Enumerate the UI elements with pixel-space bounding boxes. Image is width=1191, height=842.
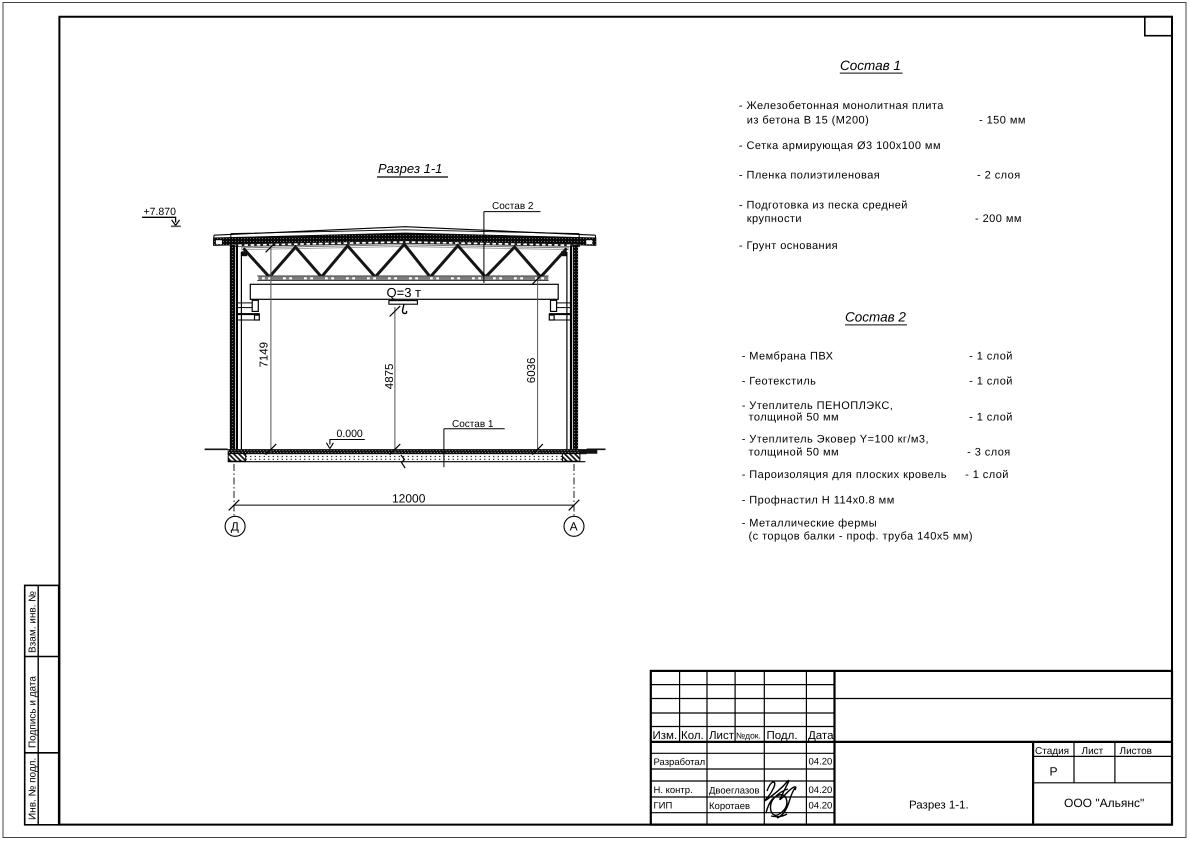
- svg-text:Д: Д: [231, 520, 239, 534]
- svg-text:- 2 слоя: - 2 слоя: [977, 170, 1021, 182]
- svg-text:- Пароизоляция для плоских кро: - Пароизоляция для плоских кровель: [742, 469, 947, 481]
- svg-text:крупности: крупности: [747, 213, 802, 225]
- svg-text:- Сетка армирующая Ø3 100х100: - Сетка армирующая Ø3 100х100 мм: [739, 140, 941, 152]
- svg-text:- Геотекстиль: - Геотекстиль: [742, 375, 817, 387]
- svg-text:Коротаев: Коротаев: [709, 801, 750, 812]
- svg-text:0.000: 0.000: [337, 428, 363, 440]
- svg-text:Листов: Листов: [1120, 746, 1153, 757]
- svg-text:Состав 2: Состав 2: [492, 201, 534, 212]
- svg-text:- Грунт основания: - Грунт основания: [739, 240, 838, 252]
- svg-text:Изм.: Изм.: [653, 730, 678, 742]
- svg-text:толщиной 50 мм: толщиной 50 мм: [749, 447, 840, 459]
- svg-text:Подл.: Подл.: [767, 730, 798, 742]
- svg-text:Лист: Лист: [1082, 746, 1104, 757]
- svg-text:Стадия: Стадия: [1035, 746, 1069, 757]
- svg-text:Двоеглазов: Двоеглазов: [709, 786, 760, 797]
- svg-text:- Пленка полиэтиленовая: - Пленка полиэтиленовая: [739, 170, 880, 182]
- svg-text:04.20: 04.20: [809, 801, 833, 812]
- svg-text:(с торцов балки - проф. труба: (с торцов балки - проф. труба 140х5 мм): [749, 530, 973, 542]
- svg-text:толщиной 50 мм: толщиной 50 мм: [749, 412, 840, 424]
- svg-text:- Металлические фермы: - Металлические фермы: [742, 518, 877, 530]
- svg-text:- Железобетонная монолитная п: - Железобетонная монолитная плита: [739, 100, 944, 112]
- svg-text:- Подготовка из песка средней: - Подготовка из песка средней: [739, 199, 908, 211]
- svg-text:- 200 мм: - 200 мм: [975, 213, 1022, 225]
- svg-text:Н. контр.: Н. контр.: [654, 785, 693, 796]
- svg-text:Лист: Лист: [709, 730, 735, 742]
- svg-text:А: А: [570, 520, 578, 534]
- svg-text:Инв. № подл.: Инв. № подл.: [28, 758, 39, 820]
- svg-text:Дата: Дата: [808, 730, 834, 742]
- svg-text:ГИП: ГИП: [654, 801, 673, 812]
- svg-text:7149: 7149: [259, 342, 271, 368]
- svg-text:Состав 1: Состав 1: [840, 58, 901, 73]
- svg-text:Кол.: Кол.: [681, 730, 704, 742]
- svg-text:04.20: 04.20: [809, 785, 833, 796]
- svg-text:- Мембрана ПВХ: - Мембрана ПВХ: [742, 350, 834, 362]
- svg-text:4875: 4875: [384, 364, 396, 390]
- svg-text:ООО "Альянс": ООО "Альянс": [1064, 796, 1144, 810]
- svg-text:Взам. инв. №: Взам. инв. №: [28, 591, 39, 653]
- svg-text:- Профнастил Н 114х0.8 мм: - Профнастил Н 114х0.8 мм: [742, 495, 895, 507]
- svg-text:- Утеплитель Эковер Y=100 кг/м: - Утеплитель Эковер Y=100 кг/м3,: [742, 433, 929, 445]
- svg-text:- Утеплитель ПЕНОПЛЭКС,: - Утеплитель ПЕНОПЛЭКС,: [742, 400, 894, 412]
- svg-text:Q=3 т: Q=3 т: [387, 285, 422, 300]
- svg-text:Разработал: Разработал: [654, 757, 706, 768]
- svg-text:- 3 слоя: - 3 слоя: [967, 447, 1011, 459]
- svg-text:12000: 12000: [392, 492, 426, 506]
- svg-text:- 1 слой: - 1 слой: [969, 375, 1013, 387]
- svg-text:Разрез 1-1: Разрез 1-1: [378, 161, 442, 176]
- svg-text:+7.870: +7.870: [144, 206, 177, 218]
- svg-text:Р: Р: [1050, 765, 1058, 779]
- svg-text:04.20: 04.20: [809, 757, 833, 768]
- svg-text:Подпись и дата: Подпись и дата: [28, 676, 39, 748]
- svg-text:из бетона В 15 (М200): из бетона В 15 (М200): [747, 114, 869, 126]
- svg-text:Разрез 1-1.: Разрез 1-1.: [909, 800, 969, 812]
- svg-text:- 150 мм: - 150 мм: [979, 114, 1026, 126]
- svg-text:- 1 слой: - 1 слой: [965, 469, 1009, 481]
- svg-text:- 1 слой: - 1 слой: [969, 412, 1013, 424]
- svg-text:6036: 6036: [526, 358, 538, 384]
- svg-text:- 1 слой: - 1 слой: [969, 350, 1013, 362]
- svg-text:№док.: №док.: [736, 731, 761, 741]
- svg-text:Состав 2: Состав 2: [845, 310, 906, 325]
